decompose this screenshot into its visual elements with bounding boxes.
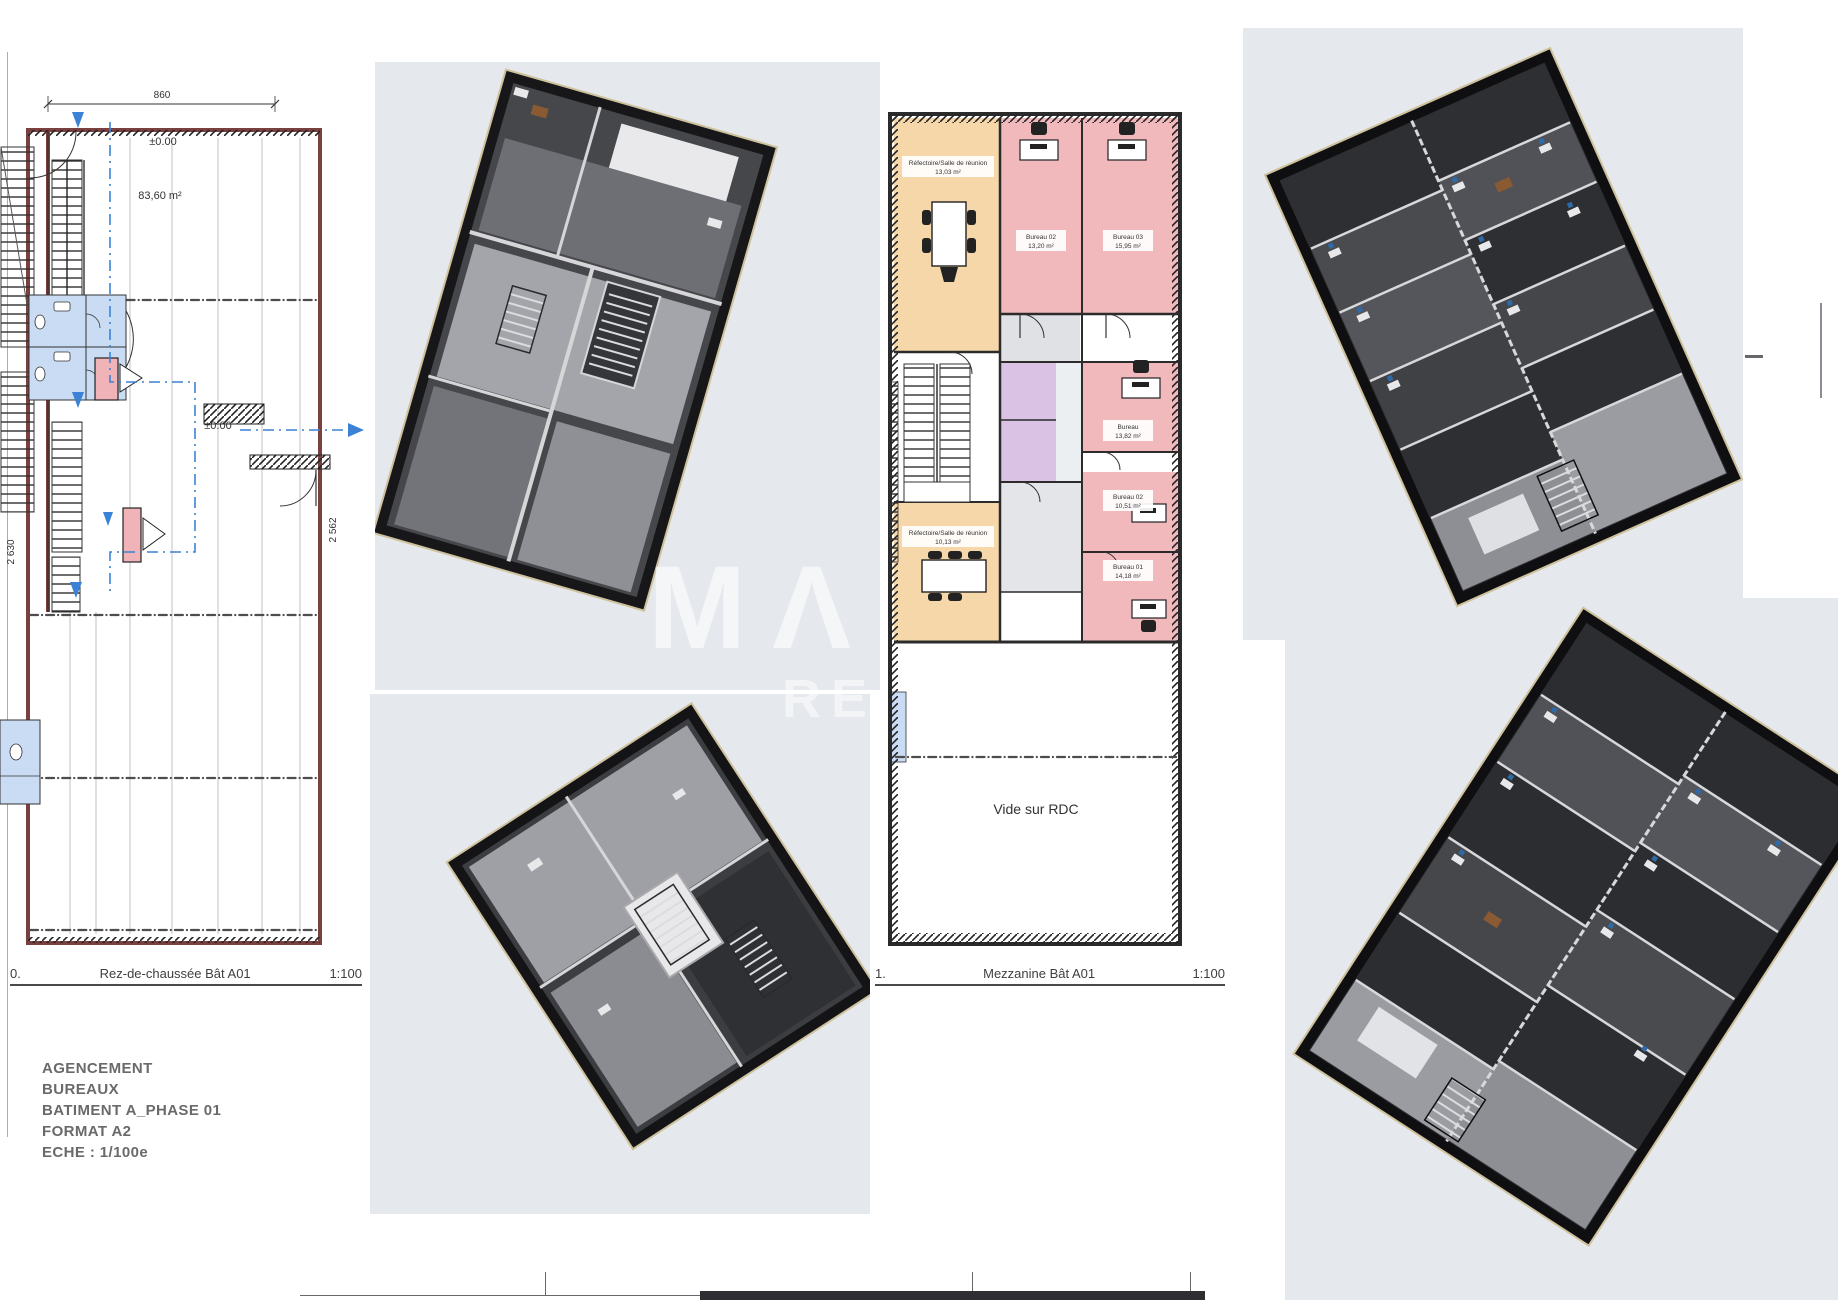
room1-name: Réfectoire/Salle de réunion bbox=[909, 160, 988, 167]
svg-text:Bureau 02: Bureau 02 bbox=[1113, 494, 1143, 501]
right-edge-line bbox=[1820, 303, 1822, 398]
rdc-caption-index: 0. bbox=[10, 966, 21, 981]
room5-area: 10,51 m² bbox=[1115, 503, 1141, 510]
svg-text:13,20 m²: 13,20 m² bbox=[1028, 243, 1054, 250]
dimension-top: 860 bbox=[44, 90, 279, 112]
room1-area: 13,03 m² bbox=[935, 169, 961, 176]
svg-text:Bureau 03: Bureau 03 bbox=[1113, 234, 1143, 241]
title-line-5: ECHE : 1/100e bbox=[42, 1142, 221, 1163]
mezzanine-floor-plan: Réfectoire/Salle de réunion 13,03 m² Bur… bbox=[870, 52, 1250, 957]
room4-name: Bureau bbox=[1118, 424, 1139, 431]
room6-area: 14,18 m² bbox=[1115, 573, 1141, 580]
drawing-sheet: 860 bbox=[0, 0, 1838, 1300]
rdc-caption-scale: 1:100 bbox=[329, 966, 362, 981]
3d-view-mezzanine-top-right bbox=[1243, 28, 1743, 640]
room5-name: Bureau 02 bbox=[1113, 494, 1143, 501]
room3-area: 15,95 m² bbox=[1115, 243, 1141, 250]
mezz-caption-index: 1. bbox=[875, 966, 886, 981]
mezzanine-caption: 1. Mezzanine Bât A01 1:100 bbox=[875, 966, 1225, 986]
room7-area: 10,13 m² bbox=[935, 539, 961, 546]
svg-text:15,95 m²: 15,95 m² bbox=[1115, 243, 1141, 250]
mezz-caption-title: Mezzanine Bât A01 bbox=[983, 966, 1095, 981]
svg-text:Réfectoire/Salle de réunion: Réfectoire/Salle de réunion bbox=[909, 160, 988, 167]
area-label: 83,60 m² bbox=[138, 190, 182, 202]
right-tick-mark bbox=[1745, 355, 1763, 358]
mezz-caption-scale: 1:100 bbox=[1192, 966, 1225, 981]
room2-area: 13,20 m² bbox=[1028, 243, 1054, 250]
dim-860: 860 bbox=[154, 90, 171, 101]
svg-text:Bureau 02: Bureau 02 bbox=[1026, 234, 1056, 241]
title-block: AGENCEMENT BUREAUX BATIMENT A_PHASE 01 F… bbox=[42, 1058, 221, 1163]
title-line-3: BATIMENT A_PHASE 01 bbox=[42, 1100, 221, 1121]
svg-text:13,03 m²: 13,03 m² bbox=[935, 169, 961, 176]
room6-name: Bureau 01 bbox=[1113, 564, 1143, 571]
3d-view-mezzanine-mid bbox=[370, 694, 870, 1214]
rdc-floor-plan: 860 bbox=[0, 52, 375, 957]
void-label: Vide sur RDC bbox=[993, 801, 1078, 817]
room4-area: 13,82 m² bbox=[1115, 433, 1141, 440]
svg-text:10,51 m²: 10,51 m² bbox=[1115, 503, 1141, 510]
title-line-1: AGENCEMENT bbox=[42, 1058, 221, 1079]
svg-text:Bureau 01: Bureau 01 bbox=[1113, 564, 1143, 571]
svg-text:13,82 m²: 13,82 m² bbox=[1115, 433, 1141, 440]
room2-name: Bureau 02 bbox=[1026, 234, 1056, 241]
room3-name: Bureau 03 bbox=[1113, 234, 1143, 241]
bottom-edge-tick-1 bbox=[545, 1272, 546, 1296]
3d-view-mezzanine-bottom-right bbox=[1285, 598, 1838, 1300]
level-label-2: ±0.00 bbox=[204, 420, 231, 432]
level-label-1: ±0.00 bbox=[149, 136, 176, 148]
dim-right: 2 562 bbox=[328, 517, 339, 542]
title-line-4: FORMAT A2 bbox=[42, 1121, 221, 1142]
bottom-dark-bar bbox=[700, 1291, 1205, 1300]
svg-text:10,13 m²: 10,13 m² bbox=[935, 539, 961, 546]
svg-text:Bureau: Bureau bbox=[1118, 424, 1139, 431]
rdc-caption: 0. Rez-de-chaussée Bât A01 1:100 bbox=[10, 966, 362, 986]
rdc-caption-title: Rez-de-chaussée Bât A01 bbox=[100, 966, 251, 981]
room7-name: Réfectoire/Salle de réunion bbox=[909, 530, 988, 537]
3d-view-rdc bbox=[375, 62, 880, 690]
dim-left: 2 630 bbox=[6, 539, 17, 564]
svg-text:14,18 m²: 14,18 m² bbox=[1115, 573, 1141, 580]
svg-text:Réfectoire/Salle de réunion: Réfectoire/Salle de réunion bbox=[909, 530, 988, 537]
title-line-2: BUREAUX bbox=[42, 1079, 221, 1100]
